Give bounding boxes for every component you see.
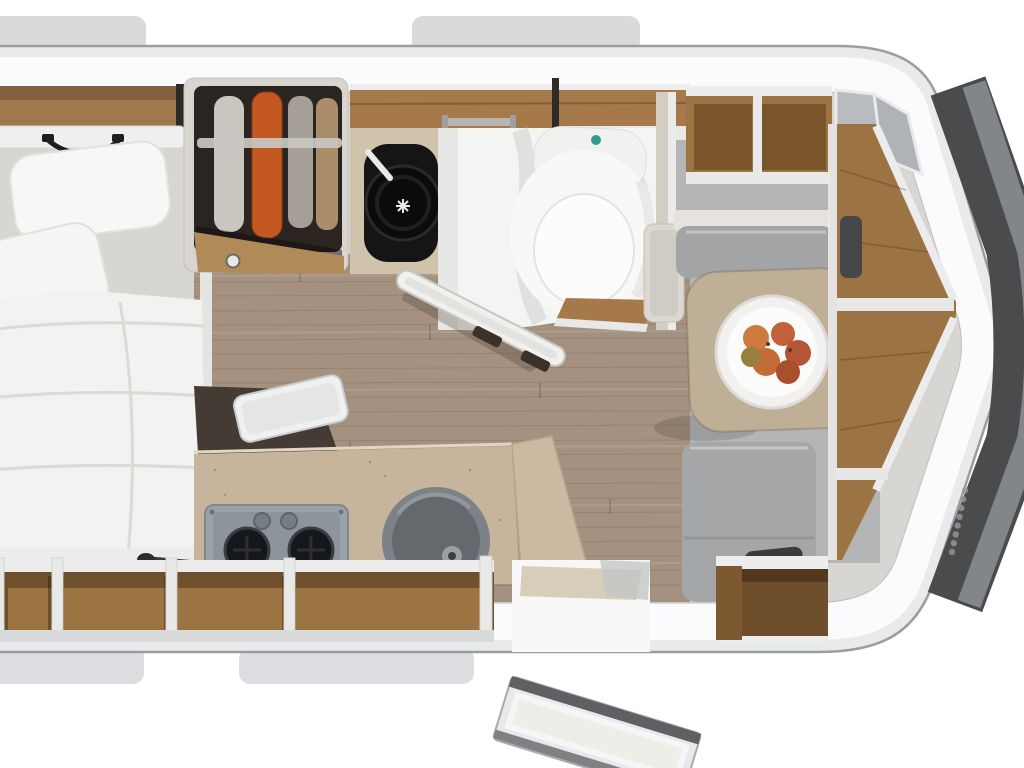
wardrobe <box>184 78 348 274</box>
overhead-cabinet-shadow <box>0 86 176 100</box>
floor-plan-render <box>0 0 1024 768</box>
band-wood <box>350 90 690 128</box>
band-gap <box>552 78 559 128</box>
shelf-inner-shadow <box>8 576 480 588</box>
clothes-rail <box>197 138 342 148</box>
sideboard-shelf <box>836 298 954 311</box>
dinette-lockers <box>686 86 832 184</box>
locker-bottom-lip <box>686 172 832 184</box>
side-cabinet-top <box>650 230 678 316</box>
garment-gray <box>288 96 313 228</box>
fan-icon <box>396 199 410 213</box>
shelf-top-board <box>0 560 494 573</box>
duvet <box>0 291 206 556</box>
rear-locker-shadow <box>742 568 828 582</box>
heater-column <box>350 122 440 274</box>
garment-tan <box>316 98 338 230</box>
hob-knob <box>254 513 270 529</box>
fruit-bowl <box>716 296 828 408</box>
garment-white <box>214 96 244 232</box>
handle-mount <box>42 134 54 142</box>
head-shelf <box>0 126 184 148</box>
band-grain <box>350 103 690 104</box>
towel-bar-mount <box>442 115 448 128</box>
wardrobe-knob <box>227 255 240 268</box>
rear-locker-edge <box>742 560 828 569</box>
sideboard-item <box>840 216 862 278</box>
entry-shadow <box>600 560 650 600</box>
rear-locker-side <box>716 566 742 640</box>
shelf-bottom-lip <box>0 630 494 642</box>
base-shelves <box>0 556 494 642</box>
sideboard-shelf <box>836 468 888 480</box>
handle-mount <box>112 134 124 142</box>
flush-button <box>591 135 601 145</box>
hob-knob <box>281 513 297 529</box>
rear-locker <box>716 556 828 642</box>
sink-drain-hole <box>448 552 456 560</box>
sideboard-front-edge <box>828 124 837 560</box>
locker-cavity <box>694 104 752 170</box>
towel-bar-mount <box>510 115 516 128</box>
floor-plan-stage <box>0 0 1024 768</box>
towel-bar <box>444 118 516 126</box>
locker-divider <box>753 96 762 180</box>
window-tab <box>239 648 474 684</box>
garment-orange <box>252 92 282 238</box>
locker-cavity <box>762 104 826 170</box>
toilet-seat <box>534 194 634 306</box>
